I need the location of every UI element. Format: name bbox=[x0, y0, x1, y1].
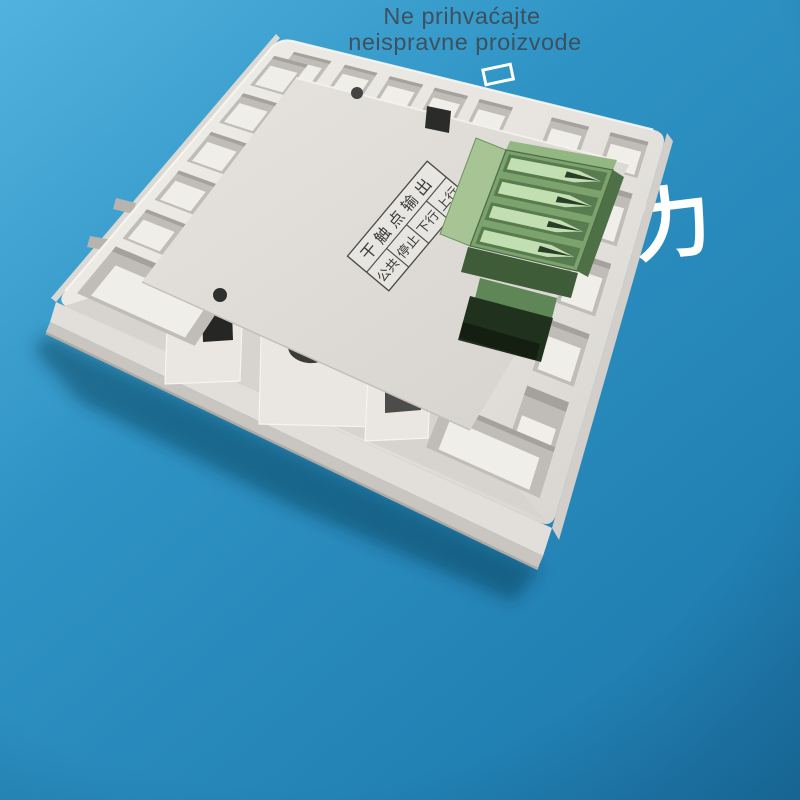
scene: Ne prihvaćajte neispravne proizvode 力 干触… bbox=[0, 0, 800, 800]
product-photo: Ne prihvaćajte neispravne proizvode 力 干触… bbox=[0, 0, 800, 800]
round-screw-hole bbox=[351, 87, 363, 99]
warning-text-line1: Ne prihvaćajte bbox=[383, 3, 540, 29]
round-screw-hole bbox=[213, 288, 227, 302]
warning-text-line2: neispravne proizvode bbox=[348, 29, 581, 55]
